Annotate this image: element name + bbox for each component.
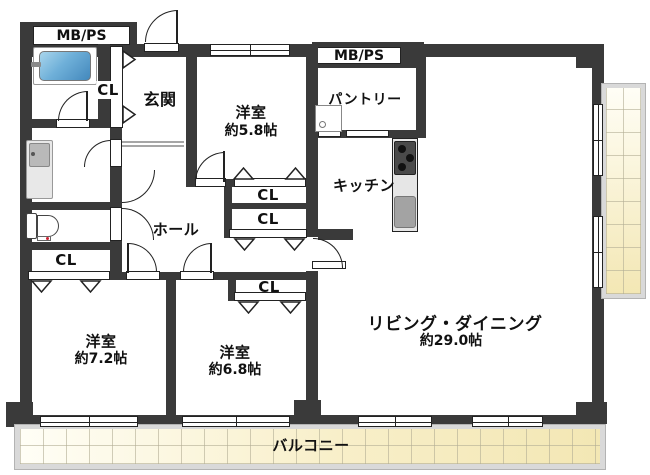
wall-washroom-bottom xyxy=(20,202,110,210)
balcony-label: バルコニー xyxy=(272,435,349,456)
toilet-door-arc xyxy=(122,208,154,240)
closet1-label: CL xyxy=(257,186,279,204)
folding-door-triangle xyxy=(238,301,259,314)
mbps-label-box-left: MB/PS xyxy=(33,26,130,45)
wall-toilet-bottom xyxy=(20,242,110,250)
floor-plan: MB/PS MB/PS xyxy=(0,0,650,475)
closet3-label: CL xyxy=(258,278,280,296)
wall-genkan-right xyxy=(186,44,197,187)
wall-bedroom-divider xyxy=(166,274,176,422)
bedroom58-door-arc xyxy=(195,152,225,182)
washroom-hall-door-arc xyxy=(122,170,155,203)
living-door-arc xyxy=(313,238,343,268)
washroom-door-arc xyxy=(84,140,111,167)
pantry-label: パントリー xyxy=(328,89,401,109)
window-living-right-upper xyxy=(593,104,603,176)
bedroom68-size: 約6.8帖 xyxy=(209,359,262,379)
window-bedroom68-bottom xyxy=(182,416,290,427)
genkan-step-line xyxy=(122,141,184,143)
front-door-arc xyxy=(145,10,178,42)
bedroom68-door-arc xyxy=(183,243,212,272)
kitchen-label: キッチン xyxy=(333,175,395,196)
closet-genkan-label: CL xyxy=(96,81,120,99)
pillar-bottom-right xyxy=(576,402,607,424)
folding-door-triangle xyxy=(31,280,52,293)
balcony-right-tiles xyxy=(606,88,641,294)
mbps-label-box-mid: MB/PS xyxy=(317,47,401,64)
bathtub-icon xyxy=(39,51,91,81)
window-bedroom58-top xyxy=(210,44,290,56)
vanity-faucet xyxy=(31,152,35,156)
genkan-label: 玄関 xyxy=(143,86,176,110)
folding-door-triangle xyxy=(122,105,137,124)
folding-door-triangle xyxy=(285,167,306,180)
bedroom68-door-leaf xyxy=(180,271,214,280)
toilet-tank xyxy=(26,213,37,239)
genkan-step-line xyxy=(122,145,184,147)
toilet-control-dot xyxy=(46,237,49,240)
window-living-bottom-left xyxy=(358,416,432,427)
stove-burner xyxy=(398,163,406,171)
closet2-door xyxy=(229,229,307,238)
folding-door-triangle xyxy=(280,301,301,314)
bedroom72-size: 約7.2帖 xyxy=(75,348,128,368)
corner-block-top-right xyxy=(576,44,602,68)
folding-door-triangle xyxy=(233,167,254,180)
toilet-door-leaf xyxy=(110,207,122,241)
front-door-leaf xyxy=(144,43,179,52)
stove-burner xyxy=(406,154,414,162)
closet2-label: CL xyxy=(257,210,279,228)
bedroom72-door-arc xyxy=(128,243,157,272)
folding-door-triangle xyxy=(122,50,137,69)
window-living-right-lower xyxy=(593,216,603,288)
folding-door-triangle xyxy=(284,238,305,251)
pantry-slider-panel-2 xyxy=(346,130,389,137)
sink-icon xyxy=(394,196,416,228)
window-living-bottom-right xyxy=(472,416,543,427)
bedroom72-door-leaf xyxy=(126,271,160,280)
wall-pantry-right xyxy=(416,44,426,138)
pantry-cabinet-icon xyxy=(315,105,342,132)
washroom-door-leaf xyxy=(110,139,122,167)
bathtub-faucet-icon xyxy=(31,62,41,67)
folding-door-triangle xyxy=(80,280,101,293)
bathroom-door-arc xyxy=(58,91,88,121)
toilet-icon xyxy=(37,215,59,237)
pantry-cabinet-knob xyxy=(319,121,326,128)
living-size: 約29.0帖 xyxy=(420,330,483,350)
stove-burner xyxy=(398,145,406,153)
mbps-text: MB/PS xyxy=(56,28,106,44)
hall-label: ホール xyxy=(153,219,200,240)
mbps-text: MB/PS xyxy=(334,48,384,64)
bedroom58-size: 約5.8帖 xyxy=(225,120,278,140)
folding-door-triangle xyxy=(234,238,255,251)
closet4-label: CL xyxy=(55,251,77,269)
window-bedroom72-bottom xyxy=(40,416,138,427)
closet4-door xyxy=(28,271,110,280)
